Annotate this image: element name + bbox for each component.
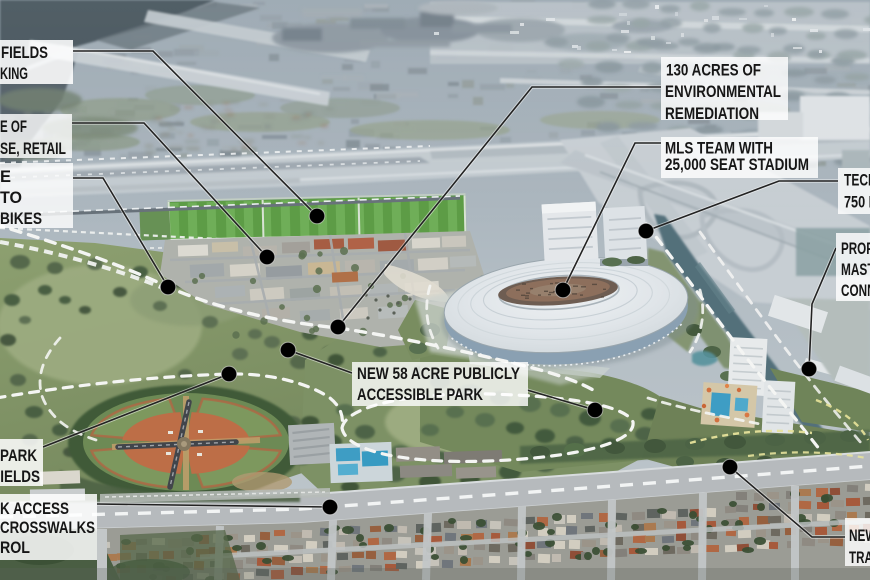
svg-text:KING: KING (0, 65, 28, 83)
svg-text:MLS TEAM WITH: MLS TEAM WITH (665, 140, 773, 158)
svg-text:BIKES: BIKES (0, 210, 42, 228)
svg-text:FIELDS: FIELDS (0, 468, 40, 486)
svg-text:NEW 58 ACRE PUBLICLY: NEW 58 ACRE PUBLICLY (357, 365, 520, 383)
svg-text:PROPOSED: PROPOSED (841, 240, 870, 258)
svg-text:CROSSWALKS: CROSSWALKS (0, 519, 95, 537)
svg-text:PARK: PARK (0, 447, 37, 465)
svg-text:SE, RETAIL: SE, RETAIL (0, 140, 66, 158)
svg-text:130 ACRES OF: 130 ACRES OF (666, 62, 761, 80)
svg-text:TRANS: TRANS (849, 549, 870, 567)
svg-text:25,000 SEAT STADIUM: 25,000 SEAT STADIUM (665, 156, 809, 174)
svg-text:FIELDS: FIELDS (1, 44, 48, 62)
svg-text:E OF: E OF (0, 118, 27, 136)
svg-text:ROL: ROL (0, 539, 30, 557)
svg-text:REMEDIATION: REMEDIATION (665, 105, 759, 123)
svg-text:ACCESSIBLE PARK: ACCESSIBLE PARK (357, 386, 483, 404)
svg-text:NEW T: NEW T (849, 527, 870, 545)
svg-text:TO: TO (0, 189, 22, 207)
svg-text:E: E (0, 168, 11, 186)
svg-text:750 ROOM: 750 ROOM (844, 194, 870, 212)
svg-text:MASTER: MASTER (841, 261, 870, 279)
svg-text:ENVIRONMENTAL: ENVIRONMENTAL (665, 83, 781, 101)
svg-text:K ACCESS: K ACCESS (0, 500, 69, 518)
svg-text:TECH HUB: TECH HUB (844, 172, 870, 190)
svg-text:CONNECT: CONNECT (841, 282, 870, 300)
